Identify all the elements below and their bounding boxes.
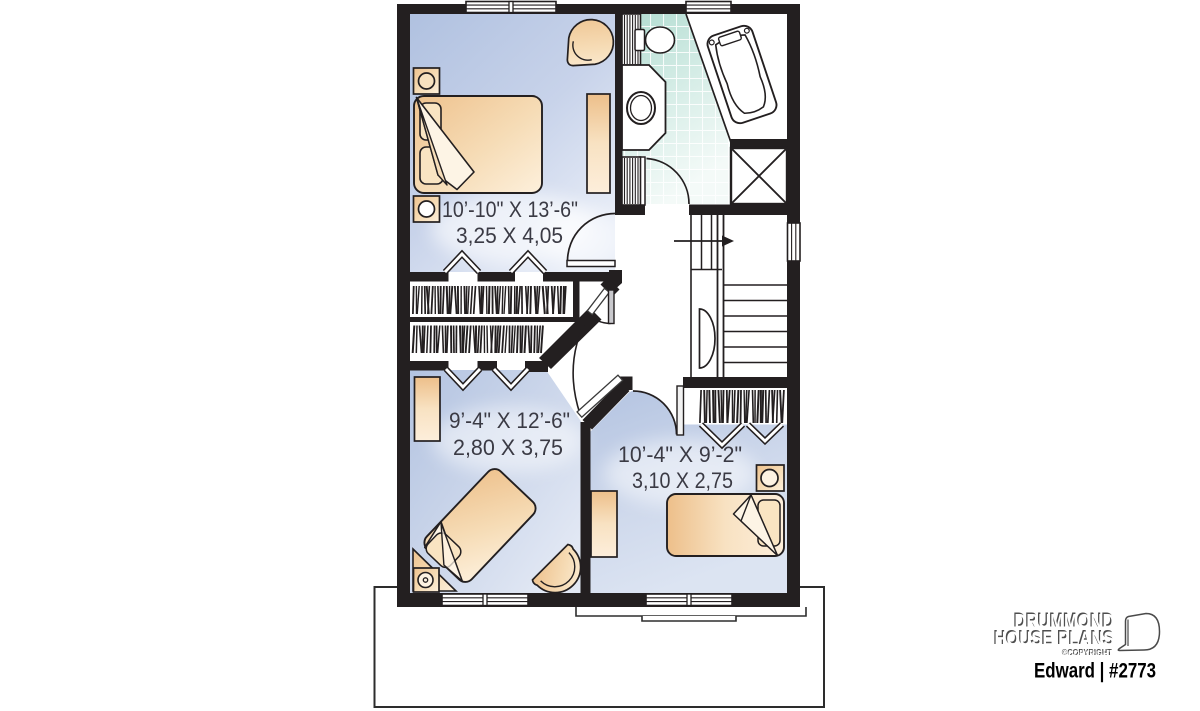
- svg-text:Edward | #2773: Edward | #2773: [1034, 659, 1156, 683]
- svg-text:2,80 X 3,75: 2,80 X 3,75: [453, 435, 563, 460]
- svg-text:HOUSE PLANS: HOUSE PLANS: [995, 628, 1115, 651]
- svg-text:©COPYRIGHT: ©COPYRIGHT: [1063, 650, 1113, 659]
- svg-text:3,10 X 2,75: 3,10 X 2,75: [632, 468, 733, 493]
- svg-text:10’-10" X 13’-6": 10’-10" X 13’-6": [442, 197, 578, 222]
- svg-text:9’-4" X 12’-6": 9’-4" X 12’-6": [449, 408, 570, 433]
- svg-text:3,25 X 4,05: 3,25 X 4,05: [456, 223, 563, 248]
- svg-text:10’-4" X 9’-2": 10’-4" X 9’-2": [618, 442, 742, 467]
